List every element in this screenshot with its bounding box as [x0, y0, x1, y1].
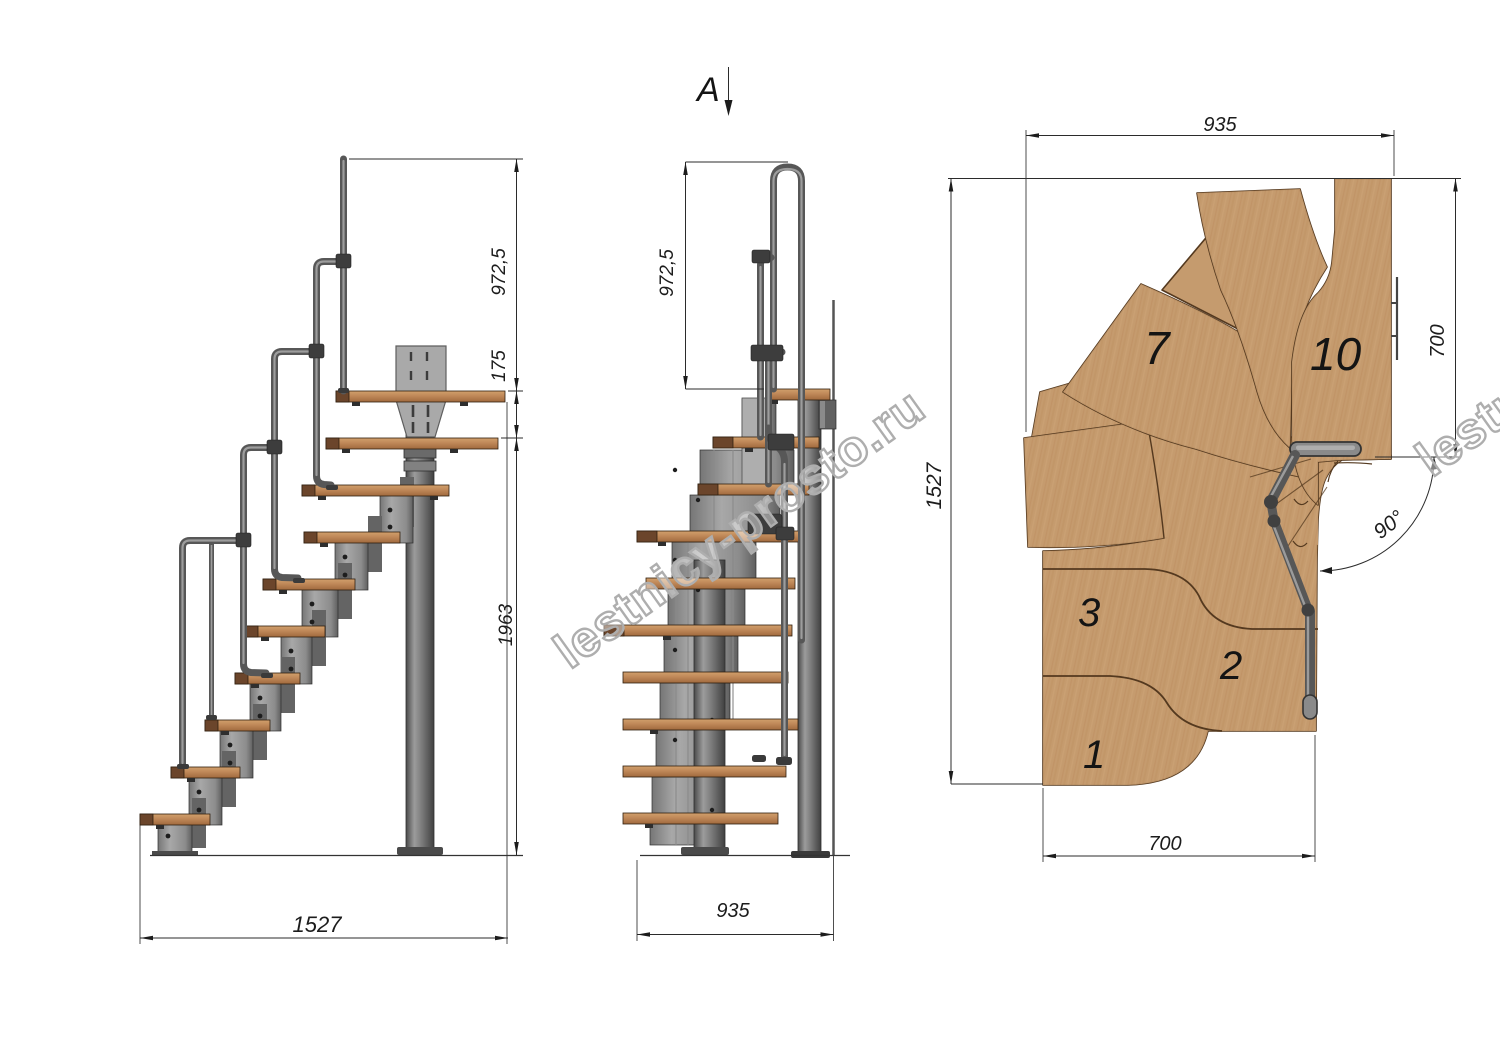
svg-text:700: 700 [1427, 324, 1449, 357]
svg-text:935: 935 [716, 900, 750, 922]
svg-text:A: A [695, 71, 720, 109]
svg-text:700: 700 [1148, 833, 1181, 855]
svg-text:1: 1 [1083, 733, 1105, 777]
svg-text:7: 7 [1144, 322, 1171, 374]
svg-text:10: 10 [1310, 328, 1362, 380]
svg-text:935: 935 [1203, 114, 1237, 136]
svg-text:972,5: 972,5 [489, 248, 510, 296]
svg-text:2: 2 [1219, 644, 1242, 688]
svg-text:3: 3 [1078, 591, 1100, 635]
svg-text:1527: 1527 [923, 461, 946, 509]
svg-text:1963: 1963 [496, 603, 517, 646]
svg-text:175: 175 [489, 350, 510, 382]
svg-text:972,5: 972,5 [657, 249, 678, 297]
svg-text:1527: 1527 [293, 912, 343, 937]
